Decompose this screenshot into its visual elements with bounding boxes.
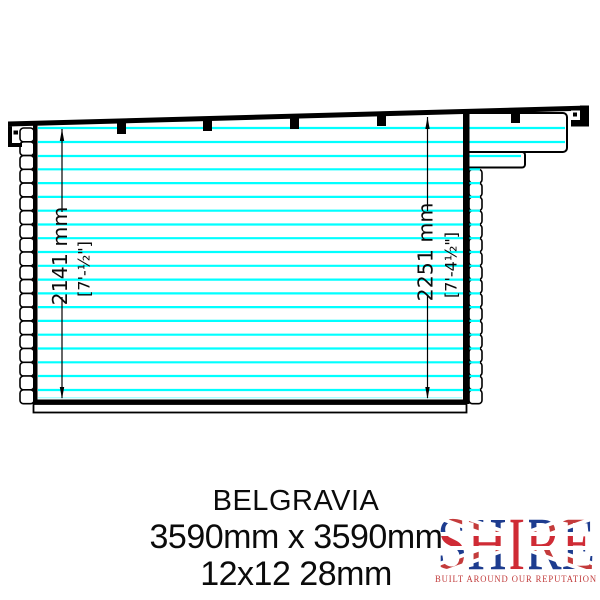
- floor-base: [34, 404, 467, 413]
- brand-wordmark: SHIRE: [437, 505, 595, 586]
- right-wall: [463, 111, 470, 404]
- page: 2141 mm [7'-½"] 2251 mm [7'-4½"] BELGRAV…: [0, 0, 600, 600]
- left-log-ends: [20, 128, 34, 404]
- porch-panel-step: [466, 152, 525, 168]
- shire-logo: SHIRE BUILT AROUND OUR REPUTATION: [433, 505, 600, 597]
- dim-right-mm: 2251 mm: [414, 203, 438, 302]
- dimension-labels: 2141 mm [7'-½"] 2251 mm [7'-4½"]: [48, 203, 461, 306]
- dimension-lines: [62, 117, 428, 398]
- left-wall: [33, 124, 38, 404]
- right-fascia-dot: [573, 113, 577, 117]
- right-log-ends: [469, 169, 482, 403]
- dim-left-ft: [7'-½"]: [75, 241, 94, 297]
- dim-right-ft: [7'-4½"]: [442, 232, 461, 298]
- dimension-arrows: [60, 117, 430, 399]
- dim-left-mm: 2141 mm: [48, 207, 72, 306]
- left-fascia-dot: [14, 131, 19, 135]
- elevation-drawing: 2141 mm [7'-½"] 2251 mm [7'-4½"]: [0, 0, 600, 465]
- brand-tagline: BUILT AROUND OUR REPUTATION: [435, 575, 597, 585]
